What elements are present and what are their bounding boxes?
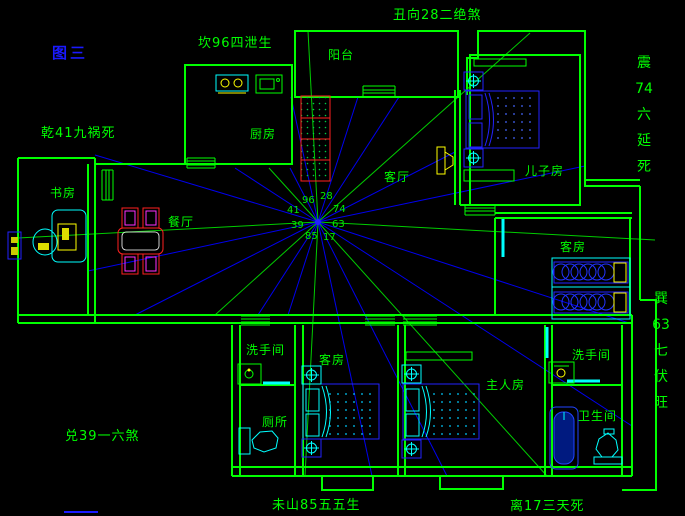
annotation-li: 离17三天死 <box>510 495 585 514</box>
dining-table <box>118 228 163 254</box>
son-nightstand-bottom <box>464 149 483 167</box>
son-bed <box>466 91 539 148</box>
compass-number-wei: 85 <box>305 232 318 242</box>
dining-chairs <box>122 208 159 274</box>
stove <box>216 75 248 93</box>
guest-nightstand-bottom <box>302 439 321 457</box>
compass-number-li: 17 <box>323 233 336 243</box>
annotation-kan: 坎96四泄生 <box>198 32 273 51</box>
cad-canvas[interactable]: 图三 坎96四泄生 丑向28二绝煞 乾41九祸死 兑39一六煞 未山85五五生 … <box>0 0 685 516</box>
annotation-wei: 未山85五五生 <box>272 494 361 513</box>
study-chair <box>33 229 57 255</box>
compass-number-qian: 41 <box>287 206 300 216</box>
compass-number-xun: 63 <box>332 220 345 230</box>
compass-center <box>315 219 321 225</box>
compass-number-zhen: 74 <box>333 205 346 215</box>
room-label-study: 书房 <box>50 184 76 201</box>
compass-number-kan: 96 <box>302 196 315 206</box>
sofa <box>301 96 330 181</box>
guest-nightstand-top <box>302 366 321 384</box>
annotation-qian: 乾41九祸死 <box>41 122 116 141</box>
bookshelf <box>8 232 21 259</box>
bathtub <box>550 407 578 469</box>
compass-number-chou: 28 <box>320 192 333 202</box>
room-label-living: 客厅 <box>384 168 410 185</box>
room-label-dining: 餐厅 <box>168 213 194 230</box>
twin-beds <box>552 258 630 319</box>
annotation-dui: 兑39一六煞 <box>65 425 140 444</box>
toilet-fixture <box>239 428 278 454</box>
annotation-xun: 巽 63 七 伏 旺 <box>648 286 674 416</box>
bathroom-toilet <box>594 429 622 464</box>
kitchen-sink <box>256 75 282 93</box>
room-label-balcony: 阳台 <box>328 46 354 63</box>
room-label-guest-bottom: 客房 <box>319 351 345 368</box>
annotation-zhen: 震 74 六 延 死 <box>631 50 657 180</box>
figure-title: 图三 <box>52 42 88 63</box>
room-label-bathroom: 卫生间 <box>578 407 617 424</box>
guest-bed <box>303 384 379 439</box>
room-label-guest-right: 客房 <box>560 238 586 255</box>
room-label-washroom-left: 洗手间 <box>246 341 285 358</box>
room-label-master: 主人房 <box>486 376 525 393</box>
annotation-chou: 丑向28二绝煞 <box>393 4 482 23</box>
sink-left <box>238 364 261 384</box>
room-label-toilet: 厕所 <box>262 413 288 430</box>
room-label-kitchen: 厨房 <box>250 125 276 142</box>
compass-number-dui: 39 <box>291 221 304 231</box>
room-label-washroom-right: 洗手间 <box>572 346 611 363</box>
room-label-son: 儿子房 <box>525 162 564 179</box>
